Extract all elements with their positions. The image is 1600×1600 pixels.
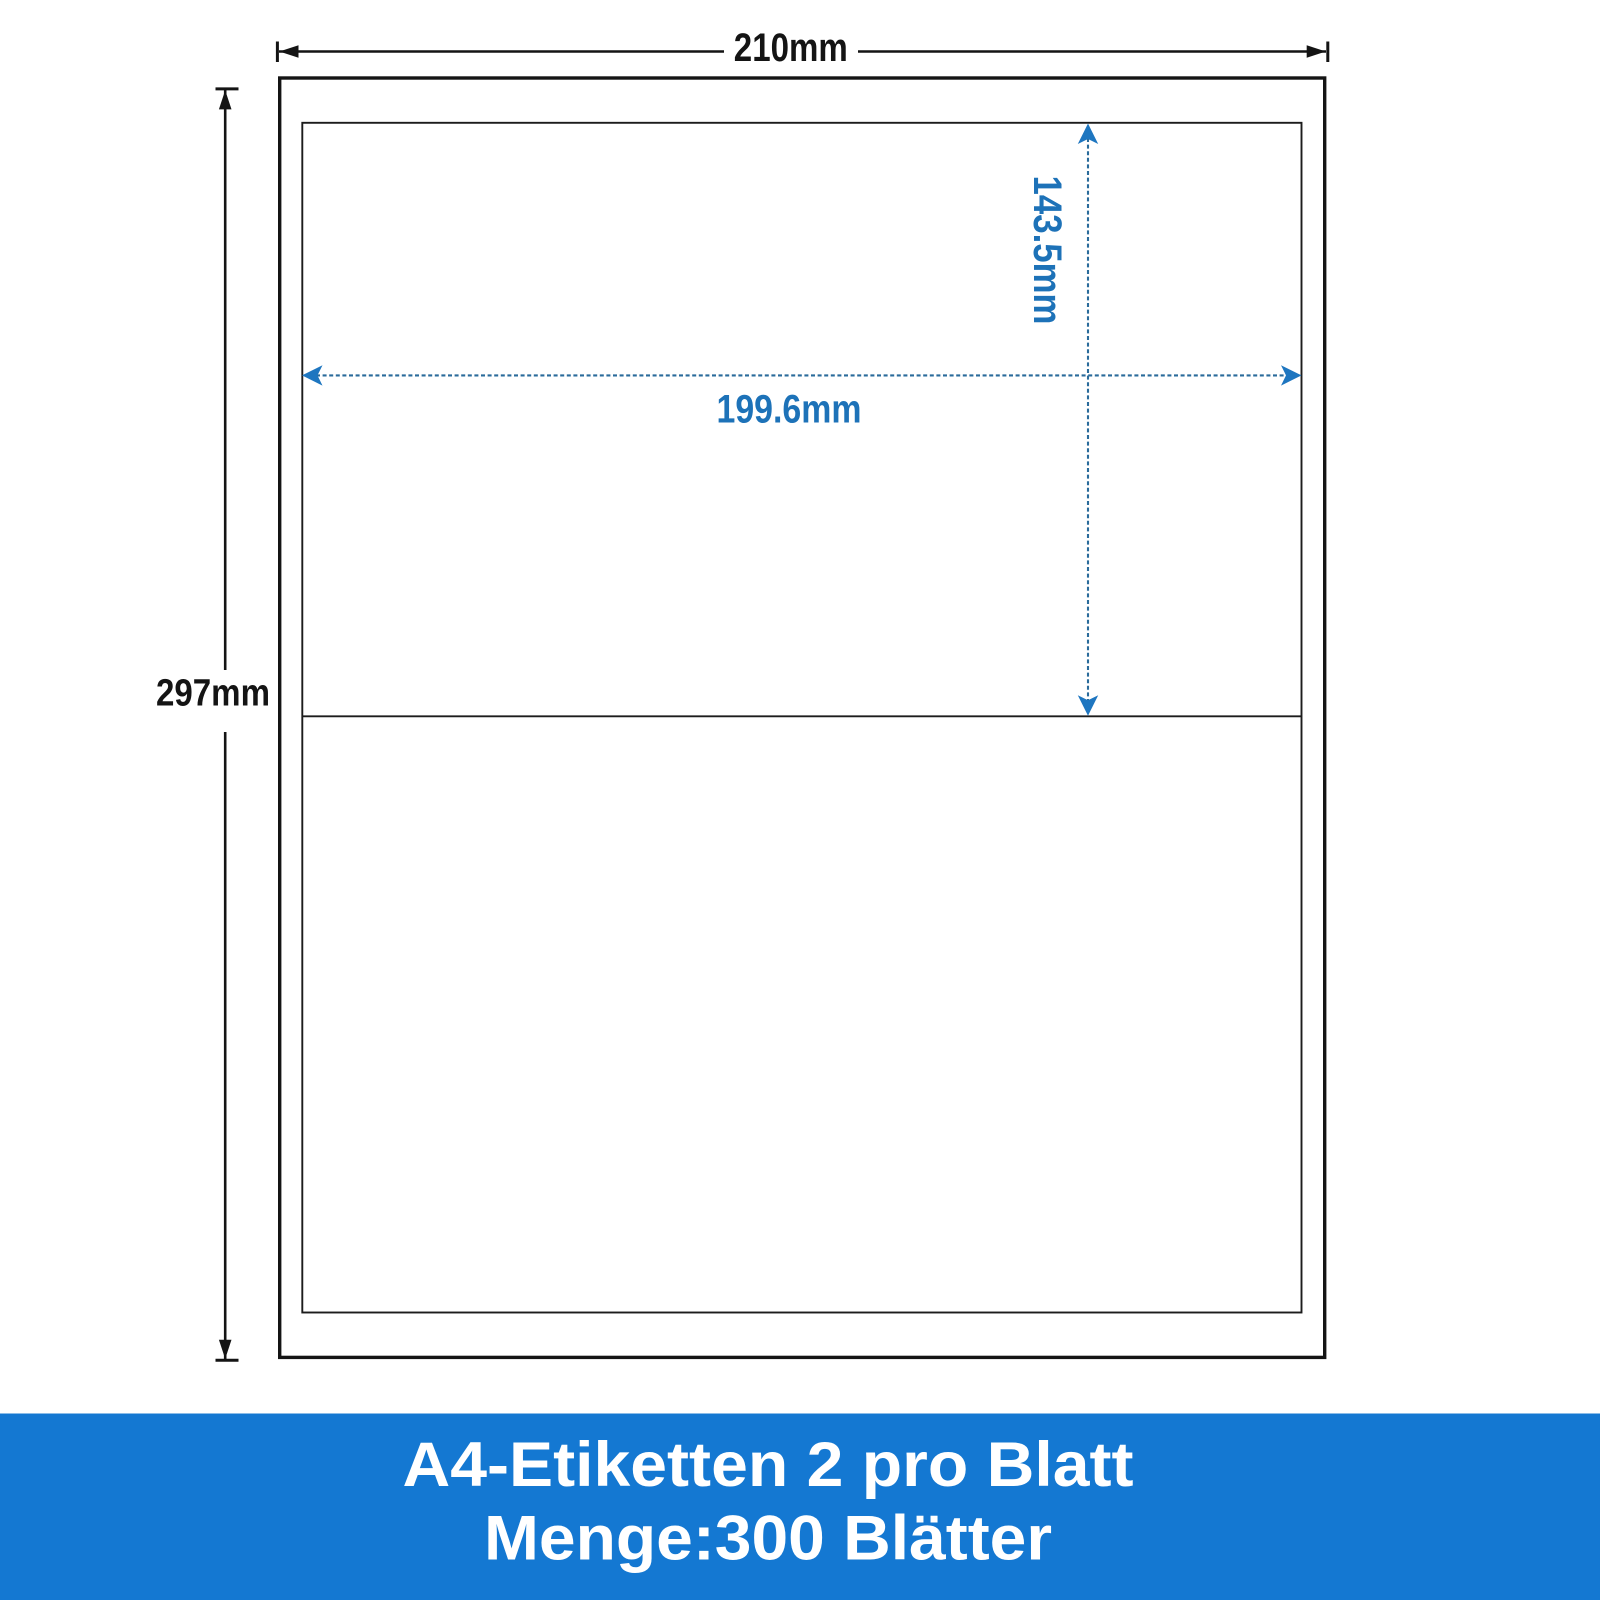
svg-text:199.6mm: 199.6mm: [717, 388, 862, 432]
svg-text:210mm: 210mm: [734, 26, 848, 70]
svg-text:A4-Etiketten 2 pro Blatt: A4-Etiketten 2 pro Blatt: [403, 1430, 1134, 1500]
svg-text:Menge:300 Blätter: Menge:300 Blätter: [484, 1504, 1052, 1574]
svg-text:143.5mm: 143.5mm: [1025, 176, 1069, 325]
svg-text:297mm: 297mm: [156, 673, 270, 715]
